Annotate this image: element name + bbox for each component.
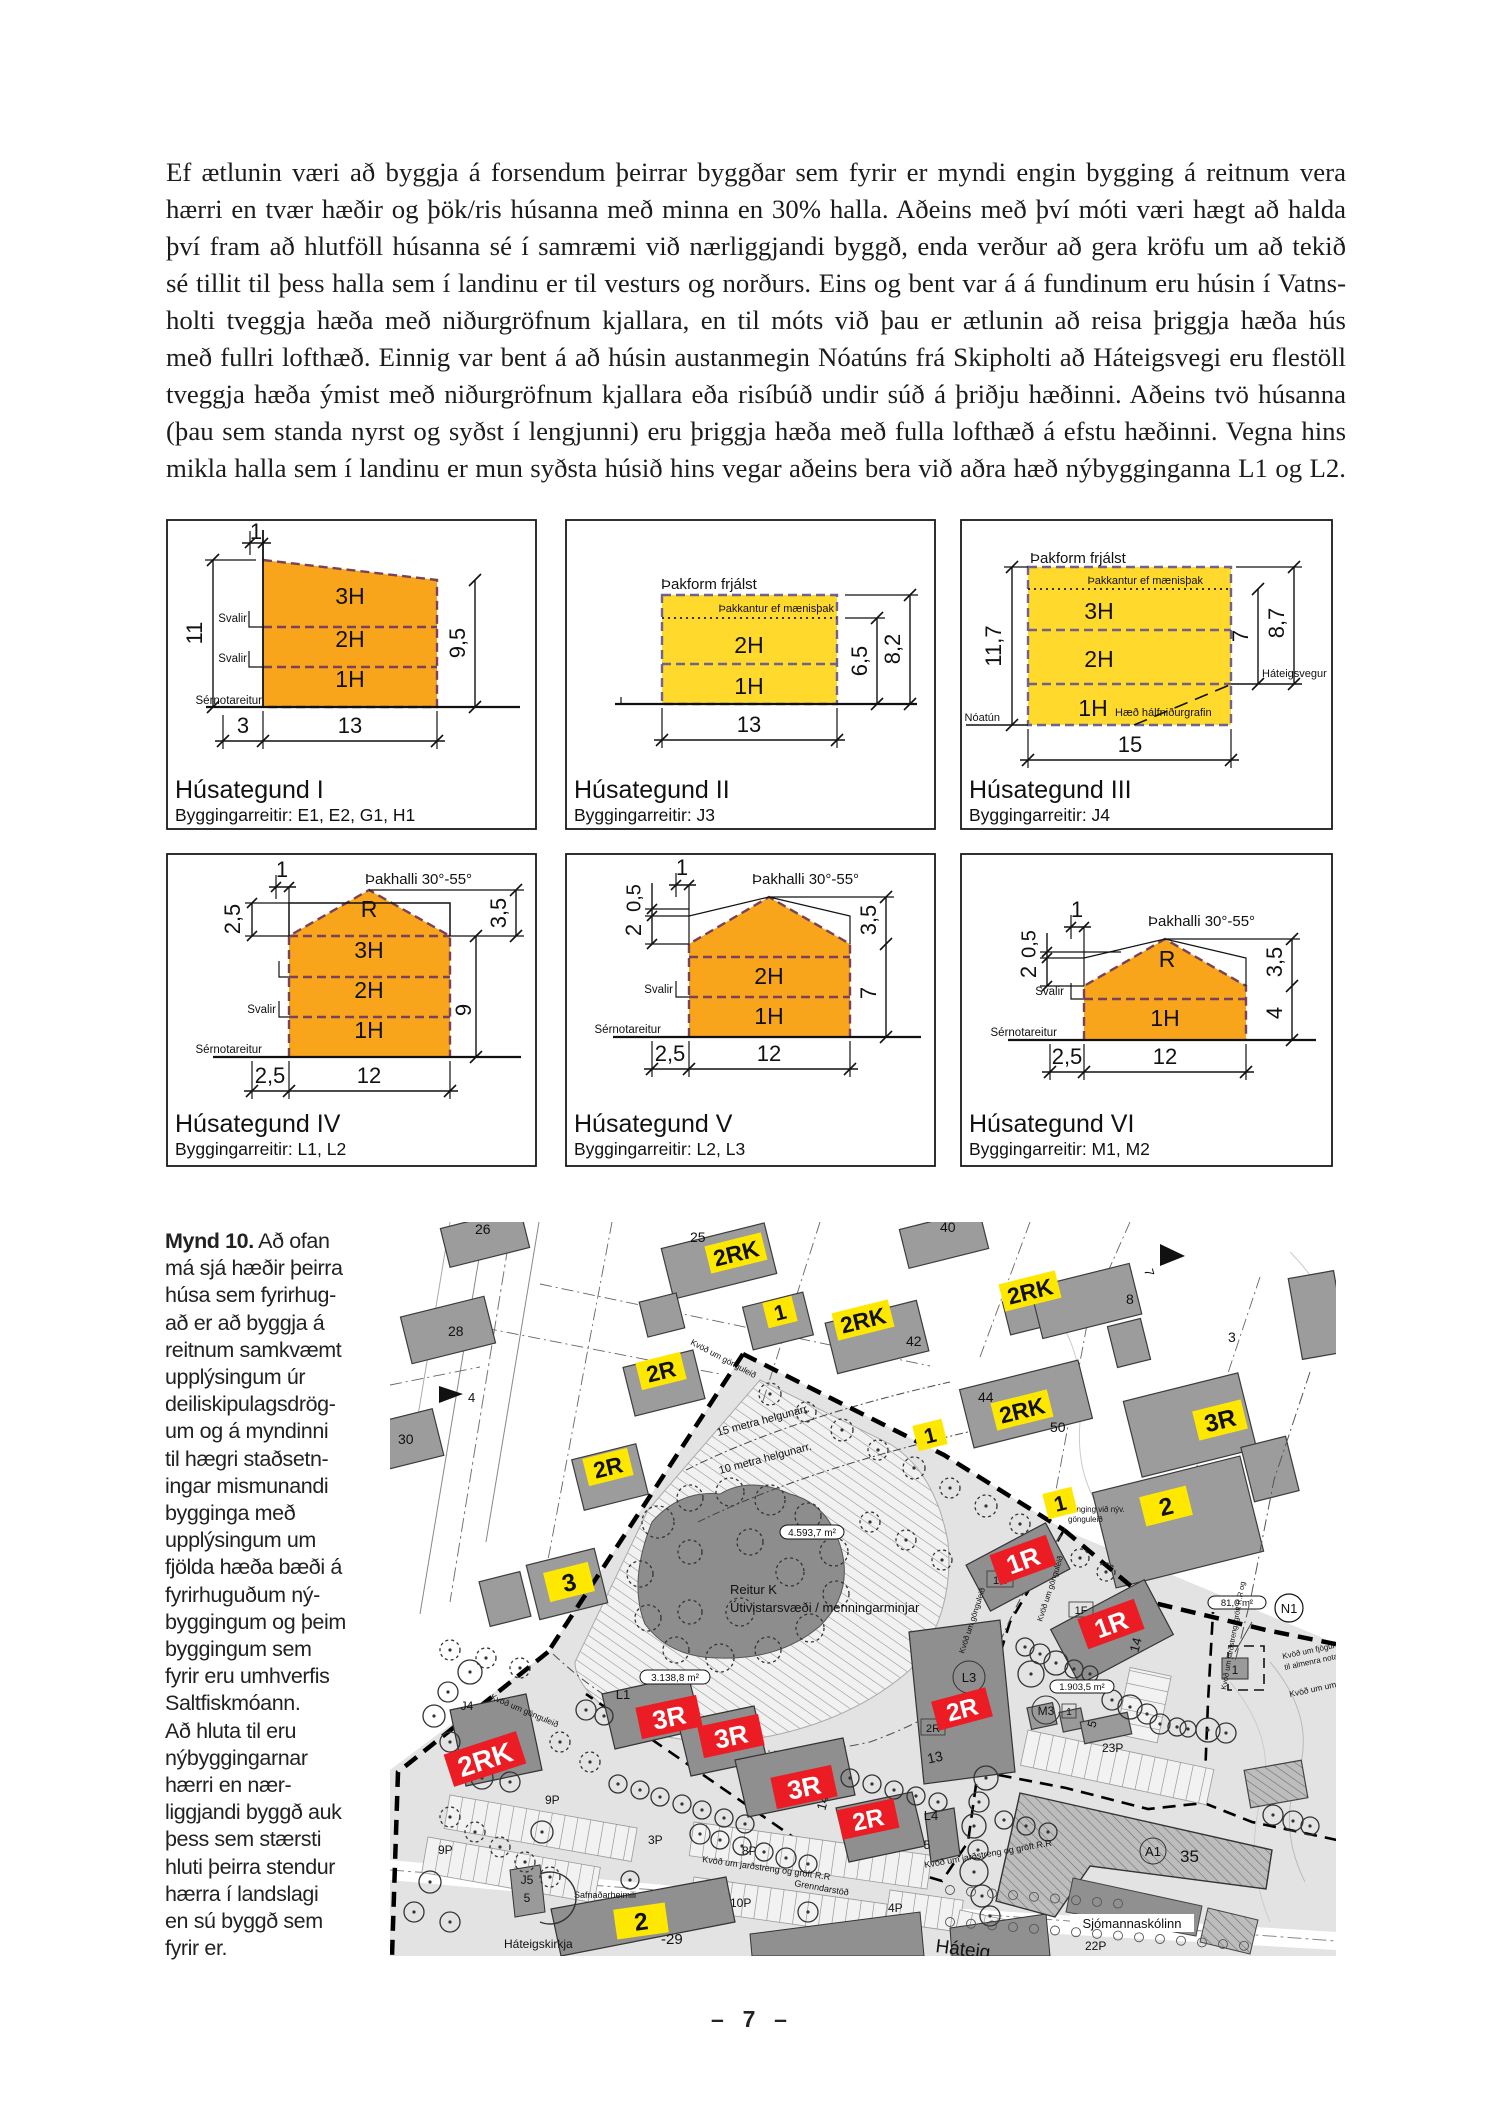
svg-text:40: 40 (940, 1222, 956, 1235)
svg-text:22P: 22P (1085, 1939, 1106, 1953)
svg-text:1H: 1H (1150, 1005, 1179, 1031)
svg-text:4.593,7 m²: 4.593,7 m² (788, 1528, 836, 1539)
svg-text:4: 4 (1262, 1007, 1287, 1019)
svg-text:28: 28 (448, 1323, 464, 1339)
svg-text:25: 25 (690, 1229, 706, 1245)
svg-text:Þakkantur ef mænisþak: Þakkantur ef mænisþak (718, 603, 834, 615)
svg-text:Útivistarsvæði / menningarminj: Útivistarsvæði / menningarminjar (730, 1600, 920, 1615)
svg-text:Sérnotareitur: Sérnotareitur (196, 1044, 263, 1056)
svg-text:J5: J5 (521, 1873, 534, 1887)
svg-text:3: 3 (237, 713, 249, 738)
svg-text:0,5: 0,5 (1018, 930, 1040, 958)
svg-text:Húsategund II: Húsategund II (574, 776, 730, 804)
svg-text:1: 1 (1066, 1707, 1072, 1718)
svg-text:1H: 1H (354, 1017, 383, 1043)
svg-text:3H: 3H (335, 583, 364, 609)
svg-text:12: 12 (1153, 1044, 1177, 1069)
svg-text:Byggingarreitir: E1, E2, G1, H: Byggingarreitir: E1, E2, G1, H1 (175, 805, 415, 825)
svg-text:Húsategund IV: Húsategund IV (175, 1110, 341, 1138)
svg-text:Þakform frjálst: Þakform frjálst (661, 576, 758, 593)
svg-text:26: 26 (475, 1222, 491, 1237)
svg-text:Svalir: Svalir (644, 984, 673, 996)
svg-text:1F: 1F (1075, 1605, 1088, 1617)
svg-text:7: 7 (1228, 630, 1253, 642)
svg-text:9P: 9P (545, 1793, 560, 1807)
svg-text:3,5: 3,5 (856, 905, 881, 936)
svg-text:5: 5 (924, 1838, 931, 1852)
svg-text:N1: N1 (1281, 1601, 1298, 1616)
svg-text:1: 1 (1232, 1663, 1239, 1677)
svg-text:35: 35 (1180, 1847, 1199, 1866)
svg-text:3,5: 3,5 (1262, 947, 1287, 978)
svg-text:1: 1 (676, 855, 688, 880)
svg-text:9,5: 9,5 (445, 628, 470, 659)
svg-text:30: 30 (398, 1431, 414, 1447)
svg-text:1: 1 (1071, 897, 1083, 922)
svg-text:9: 9 (451, 1004, 476, 1016)
svg-text:R: R (361, 896, 378, 922)
svg-text:Byggingarreitir: L1, L2: Byggingarreitir: L1, L2 (175, 1139, 346, 1159)
svg-text:8,2: 8,2 (880, 634, 905, 665)
svg-text:Þakhalli 30°-55°: Þakhalli 30°-55° (365, 871, 472, 888)
svg-text:11,7: 11,7 (981, 625, 1006, 666)
svg-text:Reitur K: Reitur K (730, 1582, 777, 1597)
svg-text:23P: 23P (1102, 1741, 1123, 1755)
svg-text:Byggingarreitir: M1, M2: Byggingarreitir: M1, M2 (969, 1139, 1150, 1159)
svg-text:A1: A1 (1145, 1844, 1161, 1859)
svg-text:2H: 2H (734, 632, 763, 658)
svg-text:10P: 10P (730, 1896, 751, 1910)
svg-text:7: 7 (856, 987, 881, 999)
svg-text:Svalir: Svalir (218, 653, 247, 665)
svg-text:1: 1 (250, 519, 262, 544)
svg-text:3P: 3P (648, 1833, 663, 1847)
svg-text:2,5: 2,5 (255, 1063, 286, 1088)
svg-text:Sérnotareitur: Sérnotareitur (991, 1027, 1058, 1039)
svg-text:L3: L3 (962, 1670, 976, 1685)
svg-text:Þakhalli 30°-55°: Þakhalli 30°-55° (752, 871, 859, 888)
svg-text:Sjómannaskólinn: Sjómannaskólinn (1082, 1916, 1181, 1931)
svg-text:9P: 9P (438, 1843, 453, 1857)
svg-text:Byggingarreitir: J3: Byggingarreitir: J3 (574, 805, 715, 825)
svg-text:8: 8 (1126, 1291, 1134, 1307)
svg-text:Húsategund VI: Húsategund VI (969, 1110, 1134, 1138)
svg-text:4: 4 (468, 1390, 475, 1405)
svg-text:4P: 4P (888, 1901, 903, 1915)
svg-text:Húsategund III: Húsategund III (969, 776, 1132, 804)
svg-text:Þakhalli 30°-55°: Þakhalli 30°-55° (1148, 913, 1255, 930)
svg-text:13: 13 (737, 712, 761, 737)
svg-text:1H: 1H (335, 666, 364, 692)
svg-text:3H: 3H (354, 937, 383, 963)
svg-text:Nóatún: Nóatún (965, 712, 1000, 724)
svg-text:L1: L1 (616, 1687, 630, 1702)
svg-text:Svalir: Svalir (1035, 986, 1064, 998)
svg-text:13: 13 (338, 713, 362, 738)
svg-text:2H: 2H (354, 977, 383, 1003)
svg-text:M3: M3 (1038, 1704, 1055, 1718)
svg-text:Byggingarreitir: L2, L3: Byggingarreitir: L2, L3 (574, 1139, 745, 1159)
svg-text:1H: 1H (734, 673, 763, 699)
svg-text:Svalir: Svalir (247, 1004, 276, 1016)
svg-text:2: 2 (1016, 966, 1041, 978)
svg-text:2H: 2H (1084, 646, 1113, 672)
svg-text:5: 5 (524, 1891, 531, 1905)
svg-text:11: 11 (182, 622, 207, 645)
svg-text:1H: 1H (754, 1003, 783, 1029)
svg-text:J4: J4 (461, 1699, 474, 1713)
svg-text:Þakform frjálst: Þakform frjálst (1030, 550, 1127, 567)
svg-text:12: 12 (757, 1041, 781, 1066)
svg-text:3,5: 3,5 (486, 898, 511, 929)
svg-text:1: 1 (276, 857, 288, 882)
svg-text:R: R (1159, 946, 1176, 972)
svg-text:50: 50 (1050, 1419, 1066, 1435)
svg-text:3H: 3H (1084, 598, 1113, 624)
svg-text:3.138,8 m²: 3.138,8 m² (651, 1673, 699, 1684)
svg-text:15: 15 (1118, 732, 1142, 757)
svg-text:Byggingarreitir: J4: Byggingarreitir: J4 (969, 805, 1110, 825)
svg-text:Sérnotareitur: Sérnotareitur (595, 1024, 662, 1036)
svg-text:2,5: 2,5 (1052, 1044, 1083, 1069)
svg-text:Húsategund I: Húsategund I (175, 776, 324, 804)
svg-text:12: 12 (357, 1063, 381, 1088)
svg-text:Safnaðarheimili: Safnaðarheimili (574, 1890, 636, 1900)
svg-text:Svalir: Svalir (218, 613, 247, 625)
svg-text:8,7: 8,7 (1264, 608, 1289, 639)
svg-text:1H: 1H (1078, 695, 1107, 721)
svg-text:2,5: 2,5 (220, 904, 245, 935)
svg-text:-29: -29 (661, 1931, 683, 1948)
svg-text:gönguleið: gönguleið (1068, 1515, 1103, 1524)
svg-text:3: 3 (1228, 1329, 1236, 1345)
svg-text:2H: 2H (335, 626, 364, 652)
svg-text:44: 44 (978, 1389, 994, 1405)
svg-text:L4: L4 (924, 1808, 938, 1823)
svg-text:7: 7 (1141, 1267, 1157, 1278)
svg-text:2,5: 2,5 (655, 1041, 686, 1066)
svg-text:42: 42 (906, 1333, 922, 1349)
svg-text:Húsategund V: Húsategund V (574, 1110, 733, 1138)
svg-text:2H: 2H (754, 963, 783, 989)
svg-text:0,5: 0,5 (623, 884, 645, 912)
svg-text:1.903,5 m²: 1.903,5 m² (1059, 1682, 1104, 1693)
svg-text:Háteigsvegur: Háteigsvegur (1262, 668, 1327, 680)
svg-text:6,5: 6,5 (847, 646, 872, 677)
svg-text:Háteigskirkja: Háteigskirkja (504, 1937, 573, 1951)
svg-text:2: 2 (621, 924, 646, 936)
svg-text:Þakkantur ef mænisþak: Þakkantur ef mænisþak (1087, 575, 1203, 587)
svg-text:Sérnotareitur: Sérnotareitur (196, 695, 263, 707)
